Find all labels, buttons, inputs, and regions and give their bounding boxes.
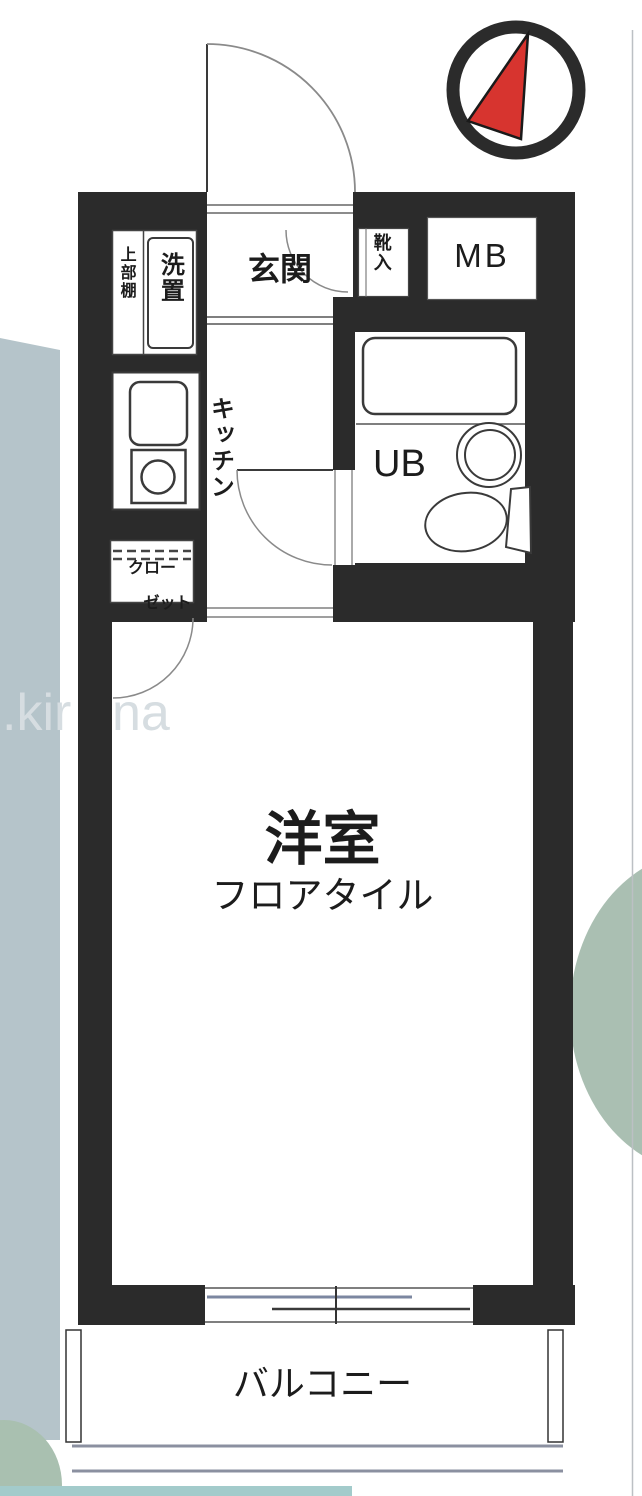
background-strip-bottom [0,1486,352,1496]
balcony-pillar-left [66,1330,81,1442]
wall-ub-bottom [333,563,533,622]
compass-ring-icon [453,27,579,153]
closet-label-line2: ゼット [144,595,192,612]
wall-left-overlay [78,620,112,800]
background-band-left [0,338,60,1440]
closet-label: クロー ゼット [110,560,194,613]
meter-box-label: MB [427,238,537,274]
floor-tile-label: フロアタイル [112,876,533,917]
washer-label: 洗置 [156,252,182,304]
room-label: 洋室 [112,808,533,872]
shoe-storage-label: 靴入 [371,233,391,273]
north-arrow-icon [468,34,528,139]
upper-shelf-label: 上部棚 [117,246,135,300]
ub-doorway [333,470,355,565]
box-kitchen [112,372,200,510]
watermark-part2: na [112,683,170,743]
genkan-label: 玄関 [207,252,353,287]
closet-label-line1: クロー [128,560,176,577]
entry-door-arc [207,44,355,192]
balcony-pillar-right [548,1330,563,1442]
balcony-label: バルコニー [112,1364,533,1404]
watermark-part1: .kir [2,683,71,743]
unit-bath-label: UB [373,444,426,486]
background-circle-right [570,852,642,1172]
kitchen-label: キッチン [206,396,232,500]
floor-plan-page: .kir na [0,0,642,1496]
window-opening [205,1285,473,1325]
